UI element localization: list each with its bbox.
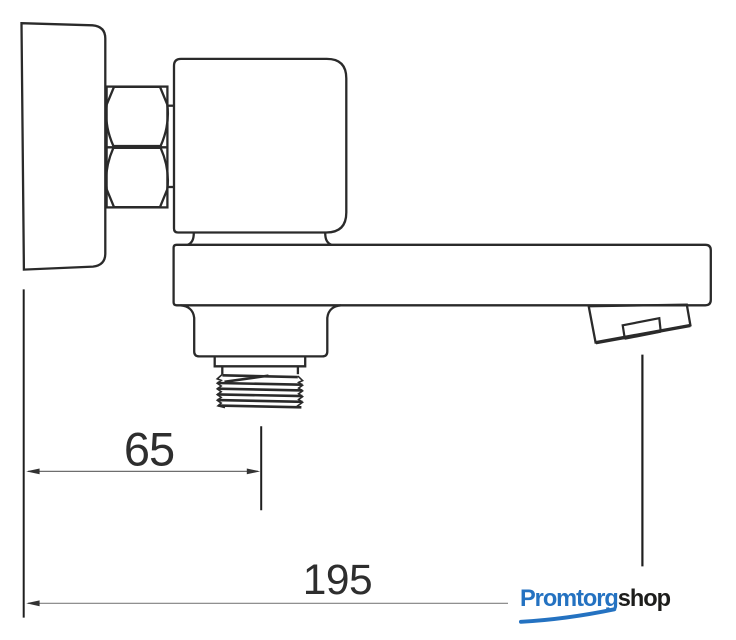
- svg-text:65: 65: [124, 423, 174, 476]
- svg-text:Promtorgshop: Promtorgshop: [520, 586, 671, 612]
- svg-text:195: 195: [303, 557, 372, 604]
